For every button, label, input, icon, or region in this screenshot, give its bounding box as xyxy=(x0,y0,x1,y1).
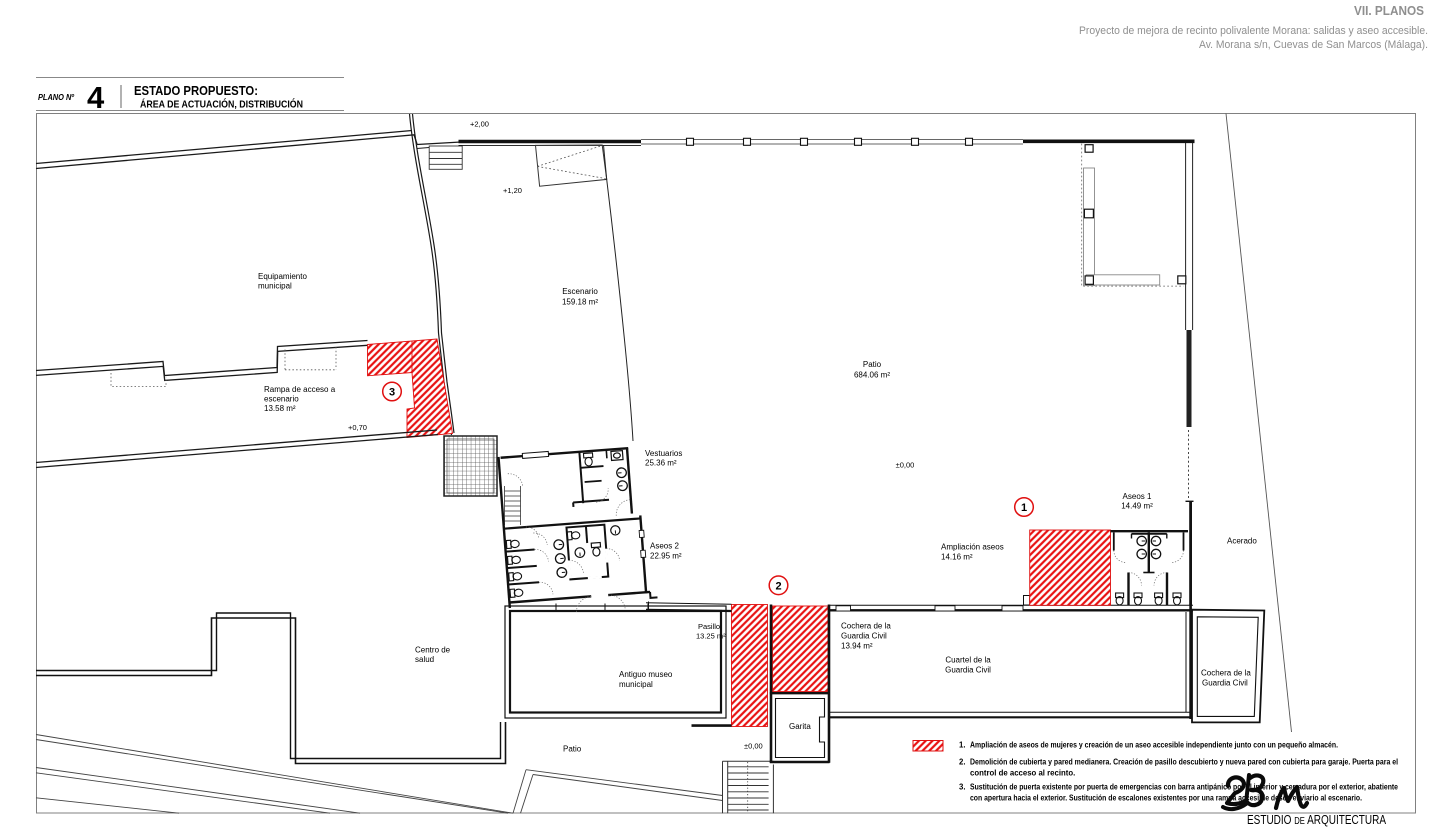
svg-text:+2,00: +2,00 xyxy=(470,120,489,129)
svg-text:13.94 m²: 13.94 m² xyxy=(841,642,873,651)
svg-text:13.58 m²: 13.58 m² xyxy=(264,404,296,413)
svg-text:escenario: escenario xyxy=(264,395,299,404)
svg-text:Sustitución de puerta existent: Sustitución de puerta existente por puer… xyxy=(970,783,1399,792)
svg-text:3: 3 xyxy=(389,387,395,399)
svg-text:ESTADO PROPUESTO:: ESTADO PROPUESTO: xyxy=(134,84,258,98)
svg-text:Cuartel de la: Cuartel de la xyxy=(945,656,991,665)
svg-text:Demolición de cubierta y pared: Demolición de cubierta y pared medianera… xyxy=(970,758,1398,767)
svg-text:22.95 m²: 22.95 m² xyxy=(650,552,682,561)
svg-text:PLANO Nº: PLANO Nº xyxy=(38,93,75,102)
svg-text:Aseos 2: Aseos 2 xyxy=(650,542,679,551)
svg-text:±0,00: ±0,00 xyxy=(896,461,915,470)
svg-text:ÁREA DE ACTUACIÓN, DISTRIBUCIÓ: ÁREA DE ACTUACIÓN, DISTRIBUCIÓN xyxy=(140,98,303,111)
svg-text:25.36 m²: 25.36 m² xyxy=(645,459,677,468)
svg-text:Cochera de la: Cochera de la xyxy=(841,622,891,631)
svg-text:Aseos 1: Aseos 1 xyxy=(1123,492,1152,501)
svg-text:Pasillo: Pasillo xyxy=(698,622,720,631)
svg-text:Av. Morana s/n, Cuevas de San: Av. Morana s/n, Cuevas de San Marcos (Má… xyxy=(1199,39,1428,51)
svg-text:159.18 m²: 159.18 m² xyxy=(562,298,598,307)
svg-text:3.: 3. xyxy=(959,783,966,792)
svg-text:Rampa de acceso a: Rampa de acceso a xyxy=(264,385,336,394)
svg-text:2.: 2. xyxy=(959,758,966,767)
svg-text:Ampliación aseos: Ampliación aseos xyxy=(941,543,1004,552)
svg-text:Guardia Civil: Guardia Civil xyxy=(945,666,991,675)
svg-text:4: 4 xyxy=(87,80,105,115)
svg-text:13.25 m²: 13.25 m² xyxy=(696,632,726,641)
svg-text:+0,70: +0,70 xyxy=(348,423,367,432)
svg-text:1.: 1. xyxy=(959,741,966,750)
svg-text:municipal: municipal xyxy=(258,282,292,291)
svg-text:+1,20: +1,20 xyxy=(503,186,522,195)
svg-text:1: 1 xyxy=(1021,502,1027,514)
svg-text:Guardia Civil: Guardia Civil xyxy=(841,632,887,641)
svg-text:Garita: Garita xyxy=(789,722,811,731)
svg-text:2: 2 xyxy=(775,580,781,592)
svg-text:Proyecto de mejora de recinto: Proyecto de mejora de recinto polivalent… xyxy=(1079,25,1428,37)
svg-text:Patio: Patio xyxy=(863,360,882,369)
svg-text:con apertura hacia el exterior: con apertura hacia el exterior. Sustituc… xyxy=(970,794,1362,803)
svg-text:684.06 m²: 684.06 m² xyxy=(854,371,890,380)
svg-text:14.49 m²: 14.49 m² xyxy=(1121,502,1153,511)
svg-text:Patio: Patio xyxy=(563,745,582,754)
svg-text:Centro de: Centro de xyxy=(415,646,451,655)
svg-text:Ampliación de aseos de mujeres: Ampliación de aseos de mujeres y creació… xyxy=(970,741,1338,750)
svg-text:control de acceso al recinto.: control de acceso al recinto. xyxy=(970,769,1075,778)
svg-text:Cochera de la: Cochera de la xyxy=(1201,669,1251,678)
svg-text:Vestuarios: Vestuarios xyxy=(645,449,682,458)
svg-text:±0,00: ±0,00 xyxy=(744,742,763,751)
svg-text:14.16 m²: 14.16 m² xyxy=(941,553,973,562)
svg-text:Equipamiento: Equipamiento xyxy=(258,272,307,281)
svg-text:VII. PLANOS: VII. PLANOS xyxy=(1354,3,1424,18)
svg-text:Antiguo museo: Antiguo museo xyxy=(619,670,673,679)
svg-text:Guardia Civil: Guardia Civil xyxy=(1202,679,1248,688)
svg-text:ESTUDIO DE ARQUITECTURA: ESTUDIO DE ARQUITECTURA xyxy=(1247,812,1386,827)
svg-text:Escenario: Escenario xyxy=(562,287,598,296)
svg-text:Acerado: Acerado xyxy=(1227,537,1257,546)
svg-text:municipal: municipal xyxy=(619,680,653,689)
svg-text:salud: salud xyxy=(415,655,434,664)
